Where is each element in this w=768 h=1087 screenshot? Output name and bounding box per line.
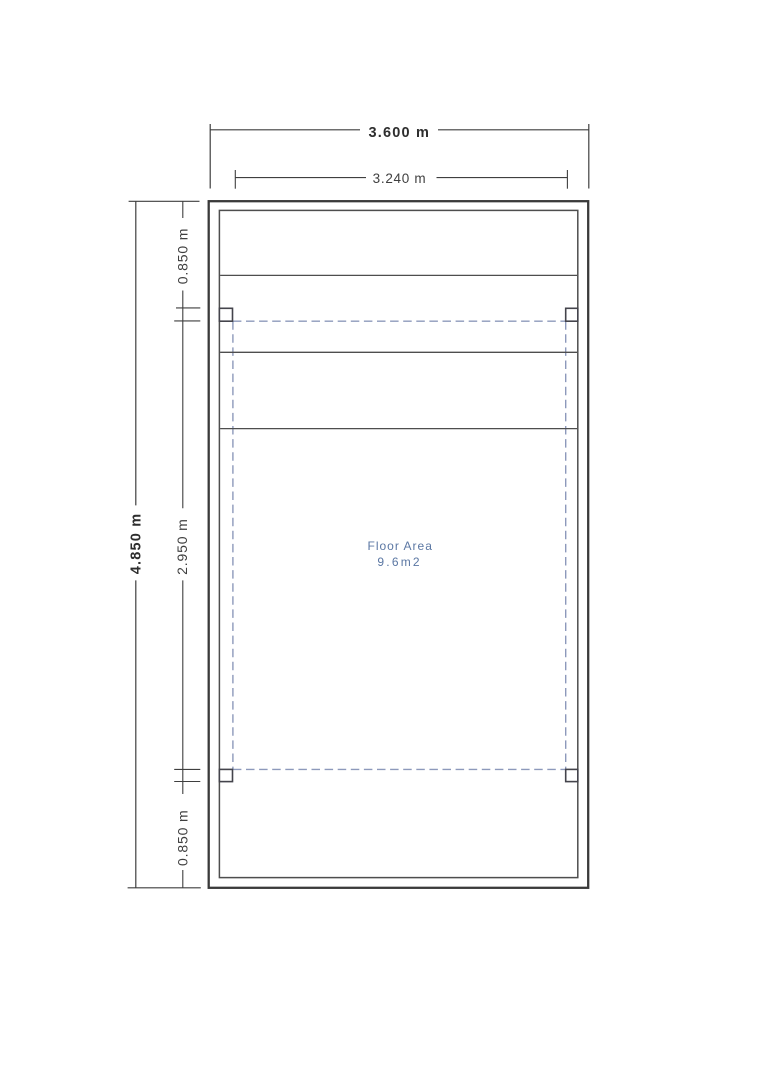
svg-text:Floor Area: Floor Area (368, 539, 433, 553)
svg-text:3.600 m: 3.600 m (368, 125, 430, 141)
svg-text:4.850 m: 4.850 m (129, 513, 145, 575)
svg-text:0.850 m: 0.850 m (175, 809, 191, 866)
svg-text:0.850 m: 0.850 m (175, 228, 191, 285)
svg-text:9.6m2: 9.6m2 (377, 555, 421, 569)
svg-text:2.950 m: 2.950 m (174, 518, 190, 575)
svg-text:3.240 m: 3.240 m (373, 171, 427, 186)
